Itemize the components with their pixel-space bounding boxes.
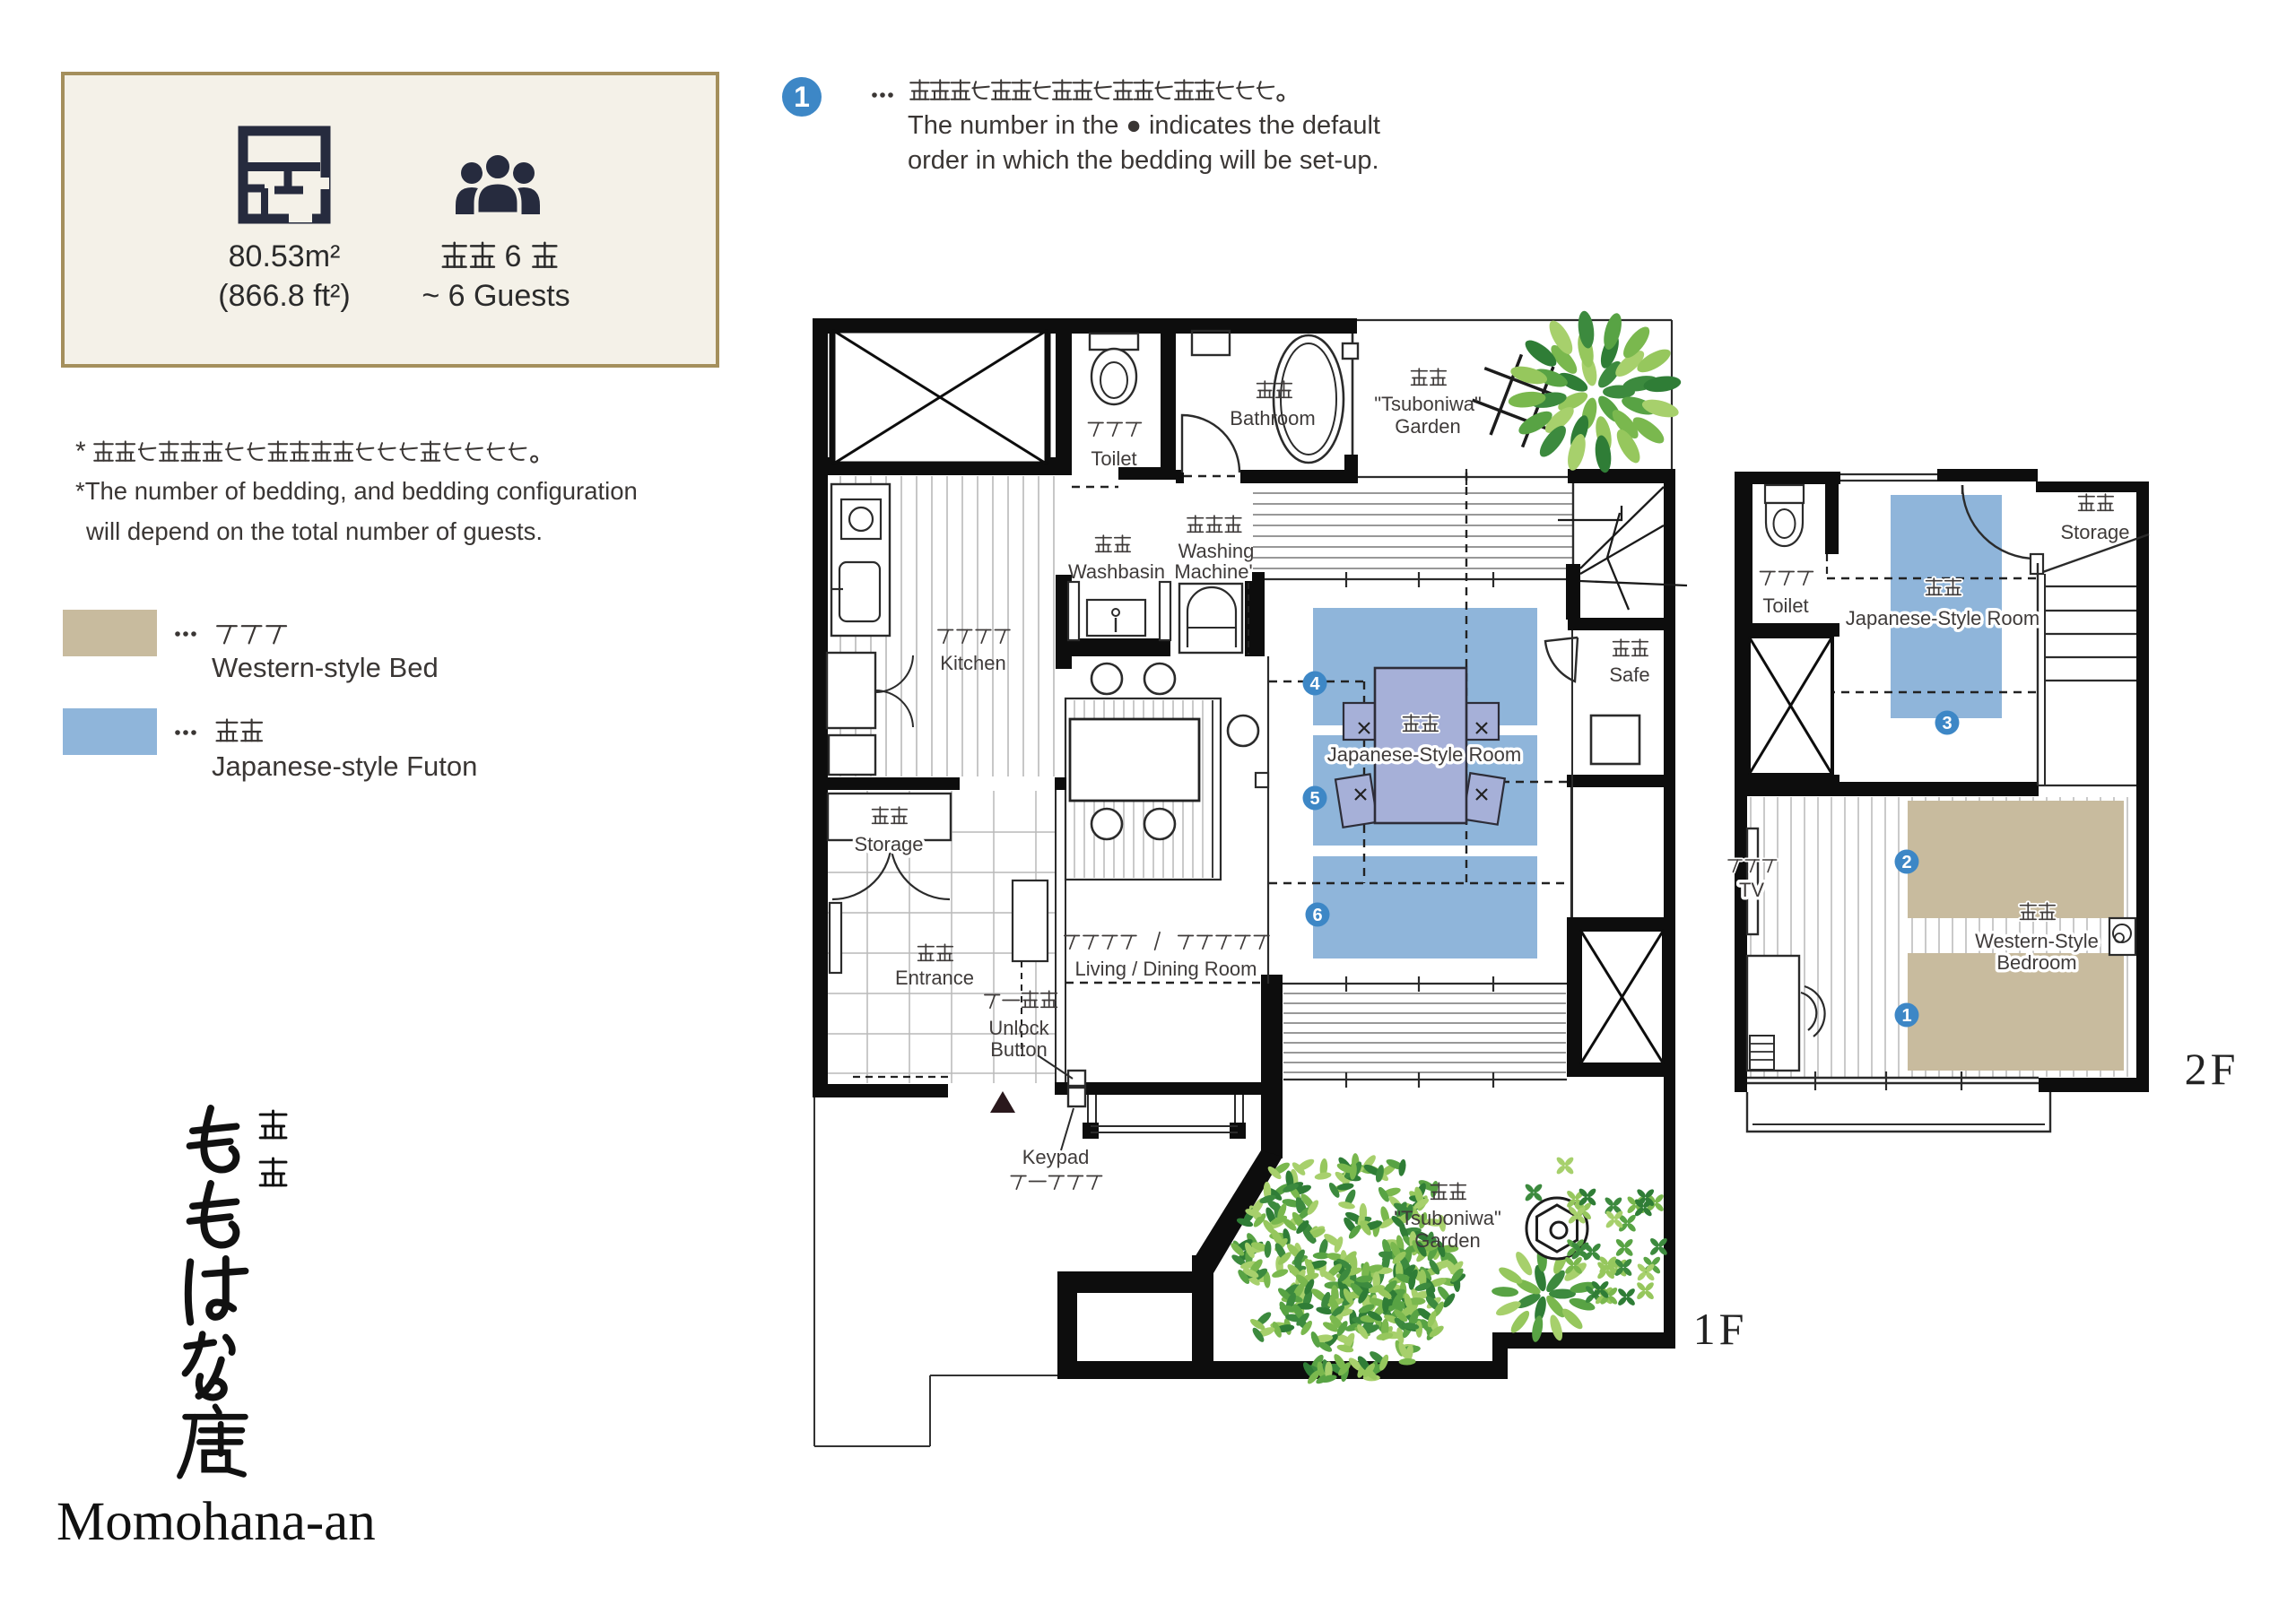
svg-text:4: 4: [1309, 674, 1320, 694]
svg-text:Momohana-an: Momohana-an: [57, 1492, 376, 1552]
svg-text:(866.8 ft²): (866.8 ft²): [218, 279, 350, 313]
svg-text:1F: 1F: [1693, 1304, 1748, 1354]
svg-text:Keypad: Keypad: [1022, 1146, 1090, 1168]
svg-text:Living / Dining Room: Living / Dining Room: [1075, 958, 1257, 980]
svg-text:Western-Style: Western-Style: [1975, 930, 2099, 952]
svg-text:"Tsuboniwa": "Tsuboniwa": [1394, 1207, 1501, 1229]
svg-text:Kitchen: Kitchen: [940, 652, 1005, 674]
svg-text:Washbasin: Washbasin: [1068, 560, 1165, 583]
svg-text:6: 6: [505, 239, 522, 273]
svg-text:Garden: Garden: [1395, 415, 1460, 438]
svg-text:2F: 2F: [2185, 1044, 2239, 1094]
svg-text:~ 6 Guests: ~ 6 Guests: [422, 279, 570, 313]
svg-text:2: 2: [1901, 853, 1911, 872]
svg-text:The number in the ● indicates: The number in the ● indicates the defaul…: [908, 111, 1380, 140]
svg-text:*: *: [75, 437, 86, 466]
svg-text:Bathroom: Bathroom: [1230, 407, 1315, 429]
svg-text:Japanese-style Futon: Japanese-style Futon: [212, 750, 477, 782]
svg-text:6: 6: [1312, 906, 1322, 925]
svg-text:Storage: Storage: [2060, 521, 2129, 543]
svg-text:Unlock: Unlock: [988, 1017, 1049, 1039]
svg-text:1: 1: [1901, 1006, 1911, 1026]
svg-text:TV: TV: [1739, 879, 1764, 901]
svg-text:Bedroom: Bedroom: [1996, 951, 2076, 974]
svg-text:Japanese-Style Room: Japanese-Style Room: [1846, 607, 2039, 629]
svg-text:Button: Button: [990, 1038, 1048, 1061]
svg-text:1: 1: [794, 81, 810, 113]
svg-text:80.53m²: 80.53m²: [229, 239, 341, 273]
svg-text:Machine': Machine': [1174, 560, 1252, 583]
svg-text:Washing: Washing: [1178, 540, 1255, 562]
svg-text:5: 5: [1309, 789, 1319, 809]
svg-text:"Tsuboniwa": "Tsuboniwa": [1374, 393, 1482, 415]
svg-text:Garden: Garden: [1414, 1229, 1480, 1252]
svg-text:Safe: Safe: [1609, 664, 1649, 686]
svg-text:Toilet: Toilet: [1762, 594, 1808, 617]
svg-text:3: 3: [1942, 714, 1952, 733]
svg-text:Western-style Bed: Western-style Bed: [212, 652, 439, 683]
svg-text:Japanese-Style Room: Japanese-Style Room: [1327, 743, 1521, 766]
svg-text:Toilet: Toilet: [1091, 447, 1136, 470]
svg-text:*The number of bedding, and be: *The number of bedding, and bedding conf…: [75, 477, 638, 505]
svg-text:will depend on the total numbe: will depend on the total number of guest…: [85, 517, 543, 545]
svg-text:Entrance: Entrance: [895, 967, 974, 989]
svg-text:Storage: Storage: [854, 833, 923, 855]
svg-text:order in which the bedding wil: order in which the bedding will be set-u…: [908, 146, 1379, 175]
